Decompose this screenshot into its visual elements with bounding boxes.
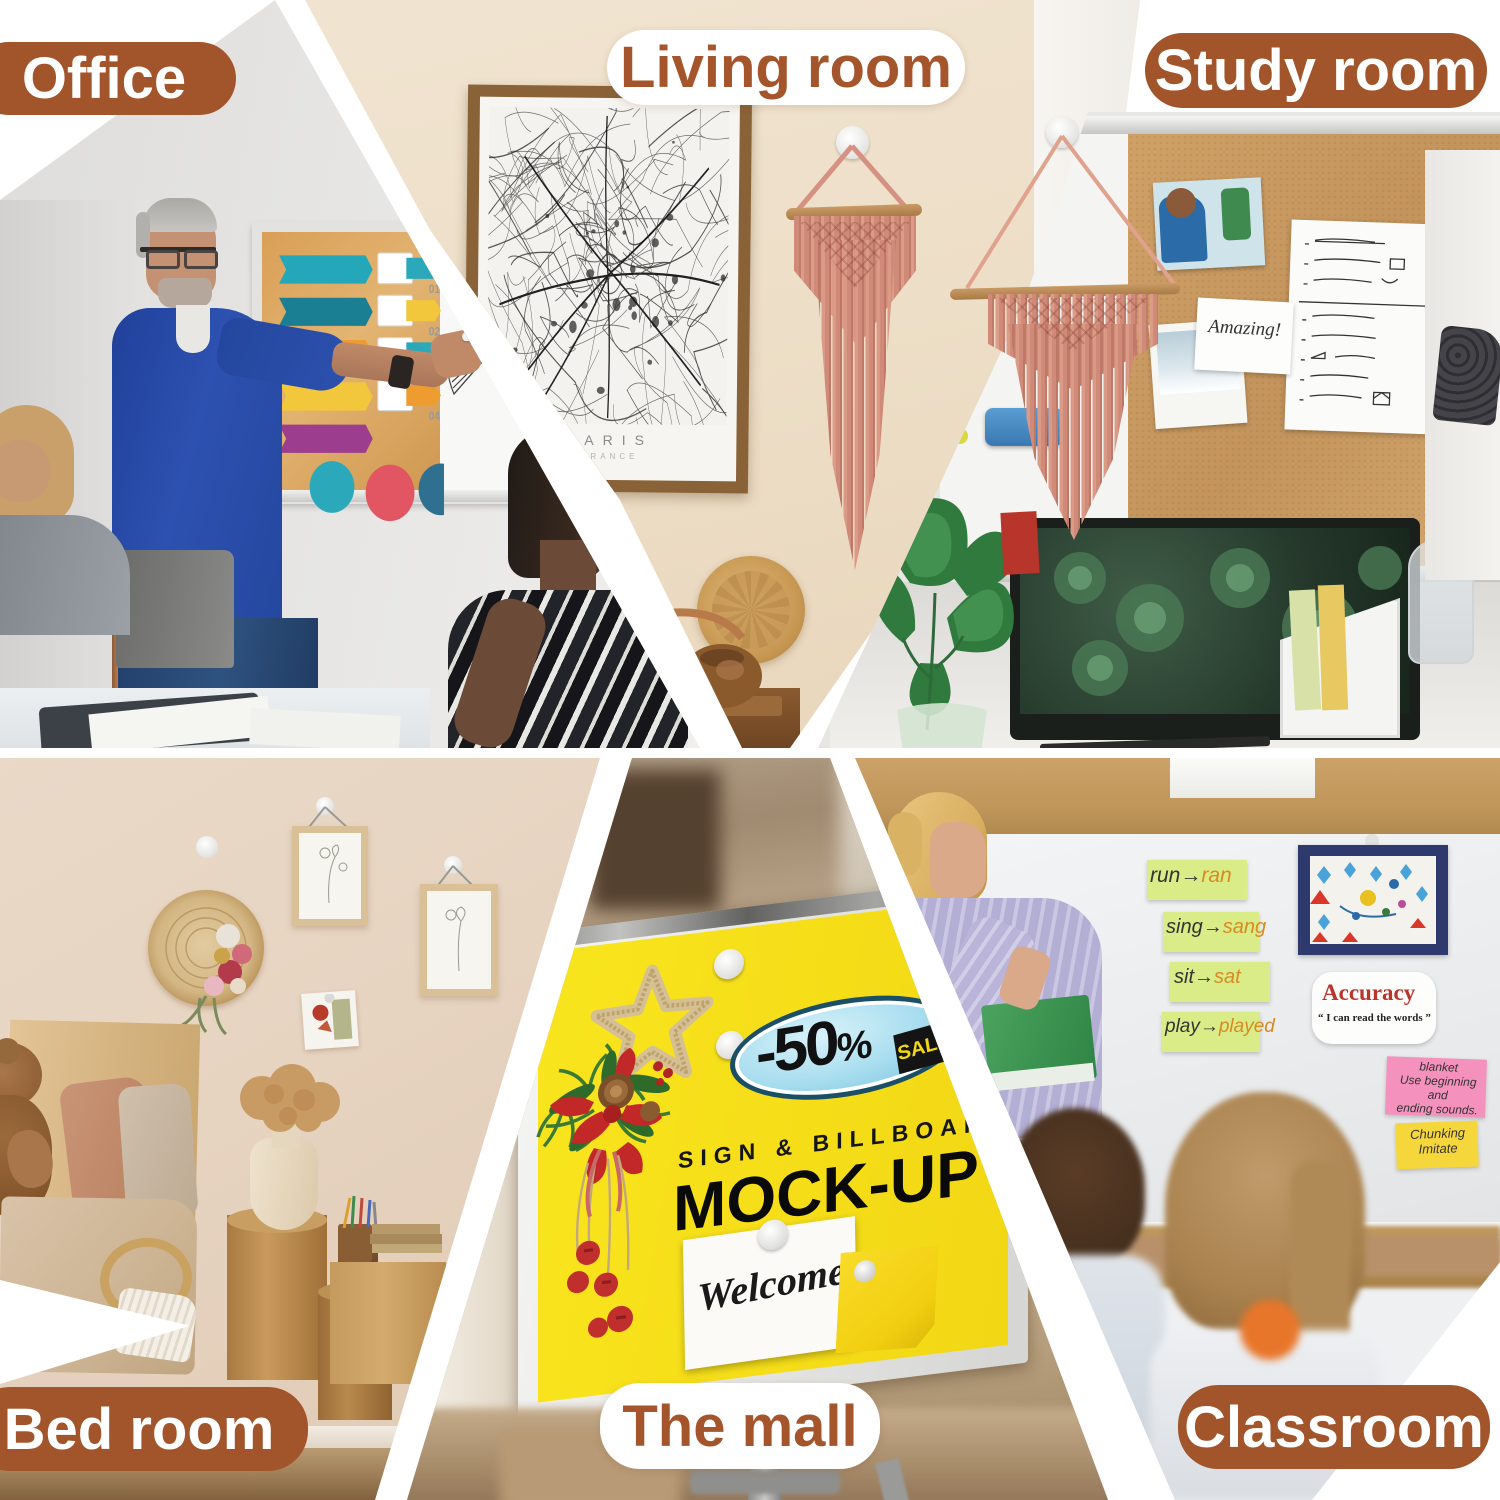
svg-text:01: 01 (429, 283, 440, 296)
